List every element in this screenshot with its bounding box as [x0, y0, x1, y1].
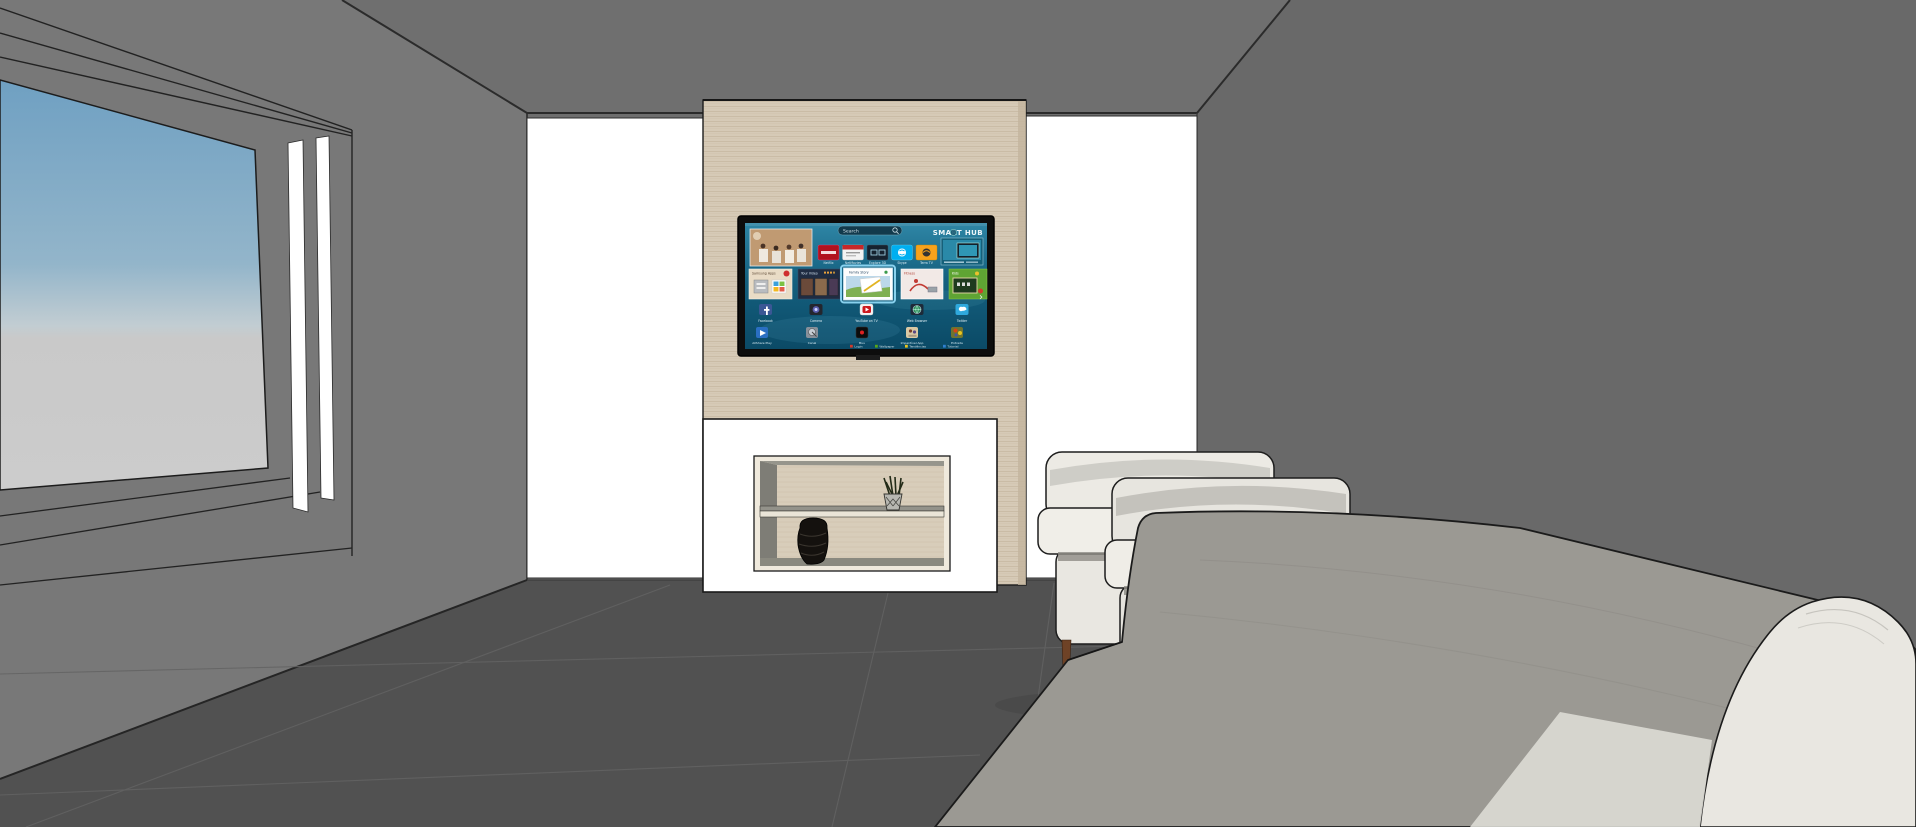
tile-label: Your Video — [801, 271, 818, 275]
muu-logo-dot — [860, 331, 864, 335]
fitness-equipment — [928, 287, 937, 292]
netmovies-line — [846, 252, 860, 253]
app-label: Twitter — [956, 319, 968, 323]
kids-letter — [957, 283, 960, 287]
photo-person — [785, 250, 794, 263]
kids-letter — [962, 283, 965, 287]
kids-letter — [967, 283, 970, 287]
photo-person-head — [774, 246, 779, 251]
app-label: YouTube on TV — [855, 319, 878, 323]
tile-label: Samsung Apps — [752, 271, 776, 275]
photo-person — [772, 251, 781, 263]
feature-tile-row: Samsung Apps Your Video — [749, 266, 987, 303]
middle-shelf-top — [760, 506, 944, 511]
photo-lamp — [753, 232, 761, 240]
middle-shelf-front — [760, 511, 944, 517]
key-label: Login — [854, 344, 862, 348]
tv-mount — [856, 355, 880, 360]
key-color-red — [850, 345, 853, 348]
star — [824, 272, 826, 274]
your-video-tile[interactable]: Your Video — [798, 269, 840, 299]
recommended-tile[interactable] — [941, 238, 983, 265]
app-label: Canal — [808, 341, 817, 345]
netmovies-band — [843, 245, 864, 250]
star — [827, 272, 829, 274]
key-color-blue — [943, 345, 946, 348]
photo-person — [797, 249, 806, 262]
fitness-figure-head — [914, 279, 918, 283]
smart-hub-logo: SMART HUB — [933, 229, 983, 237]
app-label: NetMovies — [845, 261, 862, 265]
white-wall-left — [527, 118, 704, 578]
wood-panel-side-shade — [1018, 100, 1026, 585]
next-page-chevron-icon[interactable]: › — [979, 292, 983, 303]
smart-hub-globe-icon — [950, 229, 956, 235]
key-label: Tutorial — [946, 344, 958, 348]
netflix-wordmark — [821, 251, 836, 254]
icon-quadrant — [774, 282, 779, 287]
samsung-apps-tile[interactable]: Samsung Apps — [749, 269, 792, 299]
key-color-green — [875, 345, 878, 348]
icon-quadrant — [780, 287, 785, 292]
recommended-caption-line — [944, 262, 964, 263]
photo-person-head — [761, 244, 766, 249]
kids-toy-yellow — [975, 272, 979, 276]
star — [830, 272, 832, 274]
key-label: Tendências — [908, 344, 926, 348]
movie-thumb — [801, 279, 813, 296]
tile-label: Kids — [952, 271, 959, 275]
star — [833, 272, 835, 274]
family-story-paper — [860, 277, 882, 293]
entrada-dot — [958, 331, 962, 335]
netmovies-line — [846, 255, 856, 256]
key-color-yellow — [905, 345, 908, 348]
photo-person — [759, 249, 768, 262]
app-label: Camera — [810, 319, 822, 323]
app-label: Explore 3D — [869, 261, 887, 265]
vase-body — [798, 518, 828, 564]
samsung-apps-icon-1 — [754, 280, 768, 293]
black-vase — [798, 518, 828, 564]
icon-quadrant — [774, 287, 779, 292]
figure-base — [909, 335, 917, 337]
living-room-scene: Search SMART HUB — [0, 0, 1916, 827]
app-label: Skype — [897, 261, 906, 265]
shelf-niche-bottom — [760, 558, 944, 566]
family-story-badge — [884, 271, 887, 274]
water-caustic — [760, 316, 900, 344]
tile-label: Family Story — [849, 270, 869, 274]
recommended-tv-screen — [959, 245, 977, 256]
icon-slot — [757, 287, 766, 289]
app-label: Web Browser — [907, 319, 928, 323]
movie-thumb — [815, 279, 827, 296]
photo-person-head — [787, 245, 792, 250]
facebook-f-bar — [764, 309, 769, 311]
search-placeholder: Search — [843, 229, 859, 235]
render-viewport: Search SMART HUB — [0, 0, 1916, 827]
tile-label: Fitness — [904, 271, 915, 275]
family-story-tile-selected[interactable]: Family Story — [841, 266, 895, 303]
icon-quadrant — [780, 282, 785, 287]
fireplace-unit — [703, 419, 997, 592]
app-label: Facebook — [758, 319, 773, 323]
icon-slot — [757, 283, 766, 285]
app-label: Netflix — [823, 261, 833, 265]
movie-thumb — [829, 279, 838, 296]
figure-dot — [909, 329, 912, 332]
camera-lens-center — [815, 308, 818, 311]
samsung-apps-badge — [784, 271, 790, 277]
entrada-dot — [954, 329, 958, 333]
fitness-tile[interactable]: Fitness — [901, 269, 943, 299]
entrada-dot — [955, 334, 958, 337]
tv: Search SMART HUB — [738, 216, 994, 360]
figure-dot — [913, 330, 916, 333]
featured-photo-tile[interactable] — [750, 229, 812, 266]
screen-gloss — [745, 223, 987, 226]
app-label: Terra TV — [919, 261, 934, 265]
photo-person-head — [799, 244, 804, 249]
key-label: Wallpaper — [879, 344, 895, 348]
recommended-caption-line — [966, 262, 978, 263]
app-label: AllShare Play — [752, 341, 772, 345]
plant-pot — [884, 494, 902, 510]
